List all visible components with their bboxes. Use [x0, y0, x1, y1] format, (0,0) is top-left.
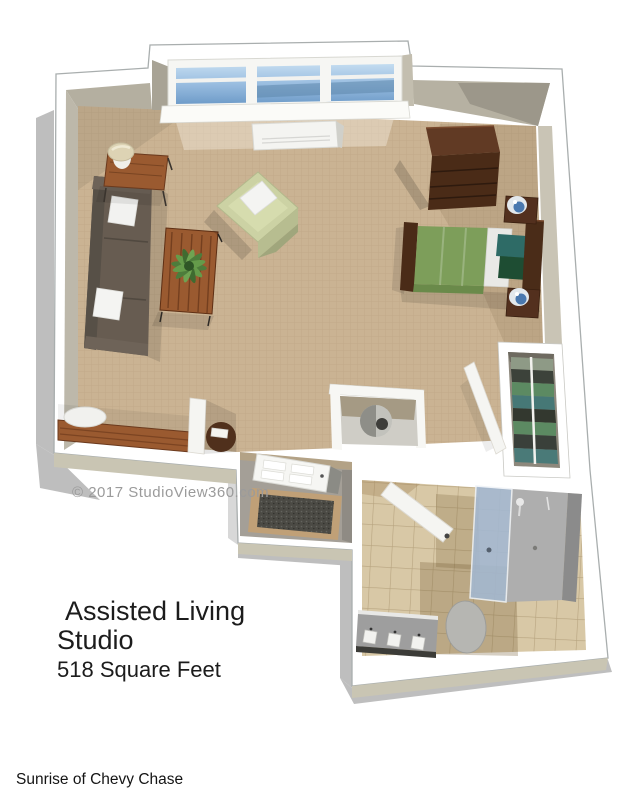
sink-basin: [411, 636, 425, 650]
shower-head-icon: [516, 498, 524, 506]
caption-square-feet: 518 Square Feet: [57, 657, 245, 683]
faucet: [394, 631, 397, 634]
faucet: [418, 634, 421, 637]
window-mullion: [246, 65, 257, 104]
caption-title-line1: Assisted Living: [65, 597, 245, 626]
side-table: [96, 152, 172, 206]
nightstand: [504, 196, 538, 224]
alcove: [329, 384, 426, 450]
throw-pillow: [93, 288, 123, 320]
blanket: [414, 226, 488, 286]
shower-drain: [533, 546, 537, 550]
shower-floor: [506, 489, 568, 602]
vanity-sink: [356, 610, 438, 658]
faucet: [370, 628, 373, 631]
window-mullion: [320, 63, 331, 102]
caption-title-line2: Studio: [57, 626, 245, 655]
plan-caption: Assisted Living Studio 518 Square Feet: [57, 597, 245, 683]
shower-glass: [470, 486, 512, 602]
bathroom: [356, 480, 586, 658]
glass-door-handle: [487, 548, 492, 553]
pillow: [496, 234, 526, 258]
telephone: [211, 428, 228, 438]
sink-basin: [363, 630, 377, 644]
page: © 2017 StudioView360.com Assisted Living…: [0, 0, 620, 805]
nightstand: [506, 288, 540, 318]
sink-basin: [387, 633, 401, 647]
radiator: [252, 121, 344, 150]
floor-plan-rendering: [0, 0, 620, 805]
desk-lamp: [64, 407, 106, 427]
community-name: Sunrise of Chevy Chase: [16, 771, 183, 789]
partition-wall: [188, 398, 206, 454]
copyright-watermark: © 2017 StudioView360.com: [72, 484, 269, 501]
shower: [470, 486, 582, 602]
